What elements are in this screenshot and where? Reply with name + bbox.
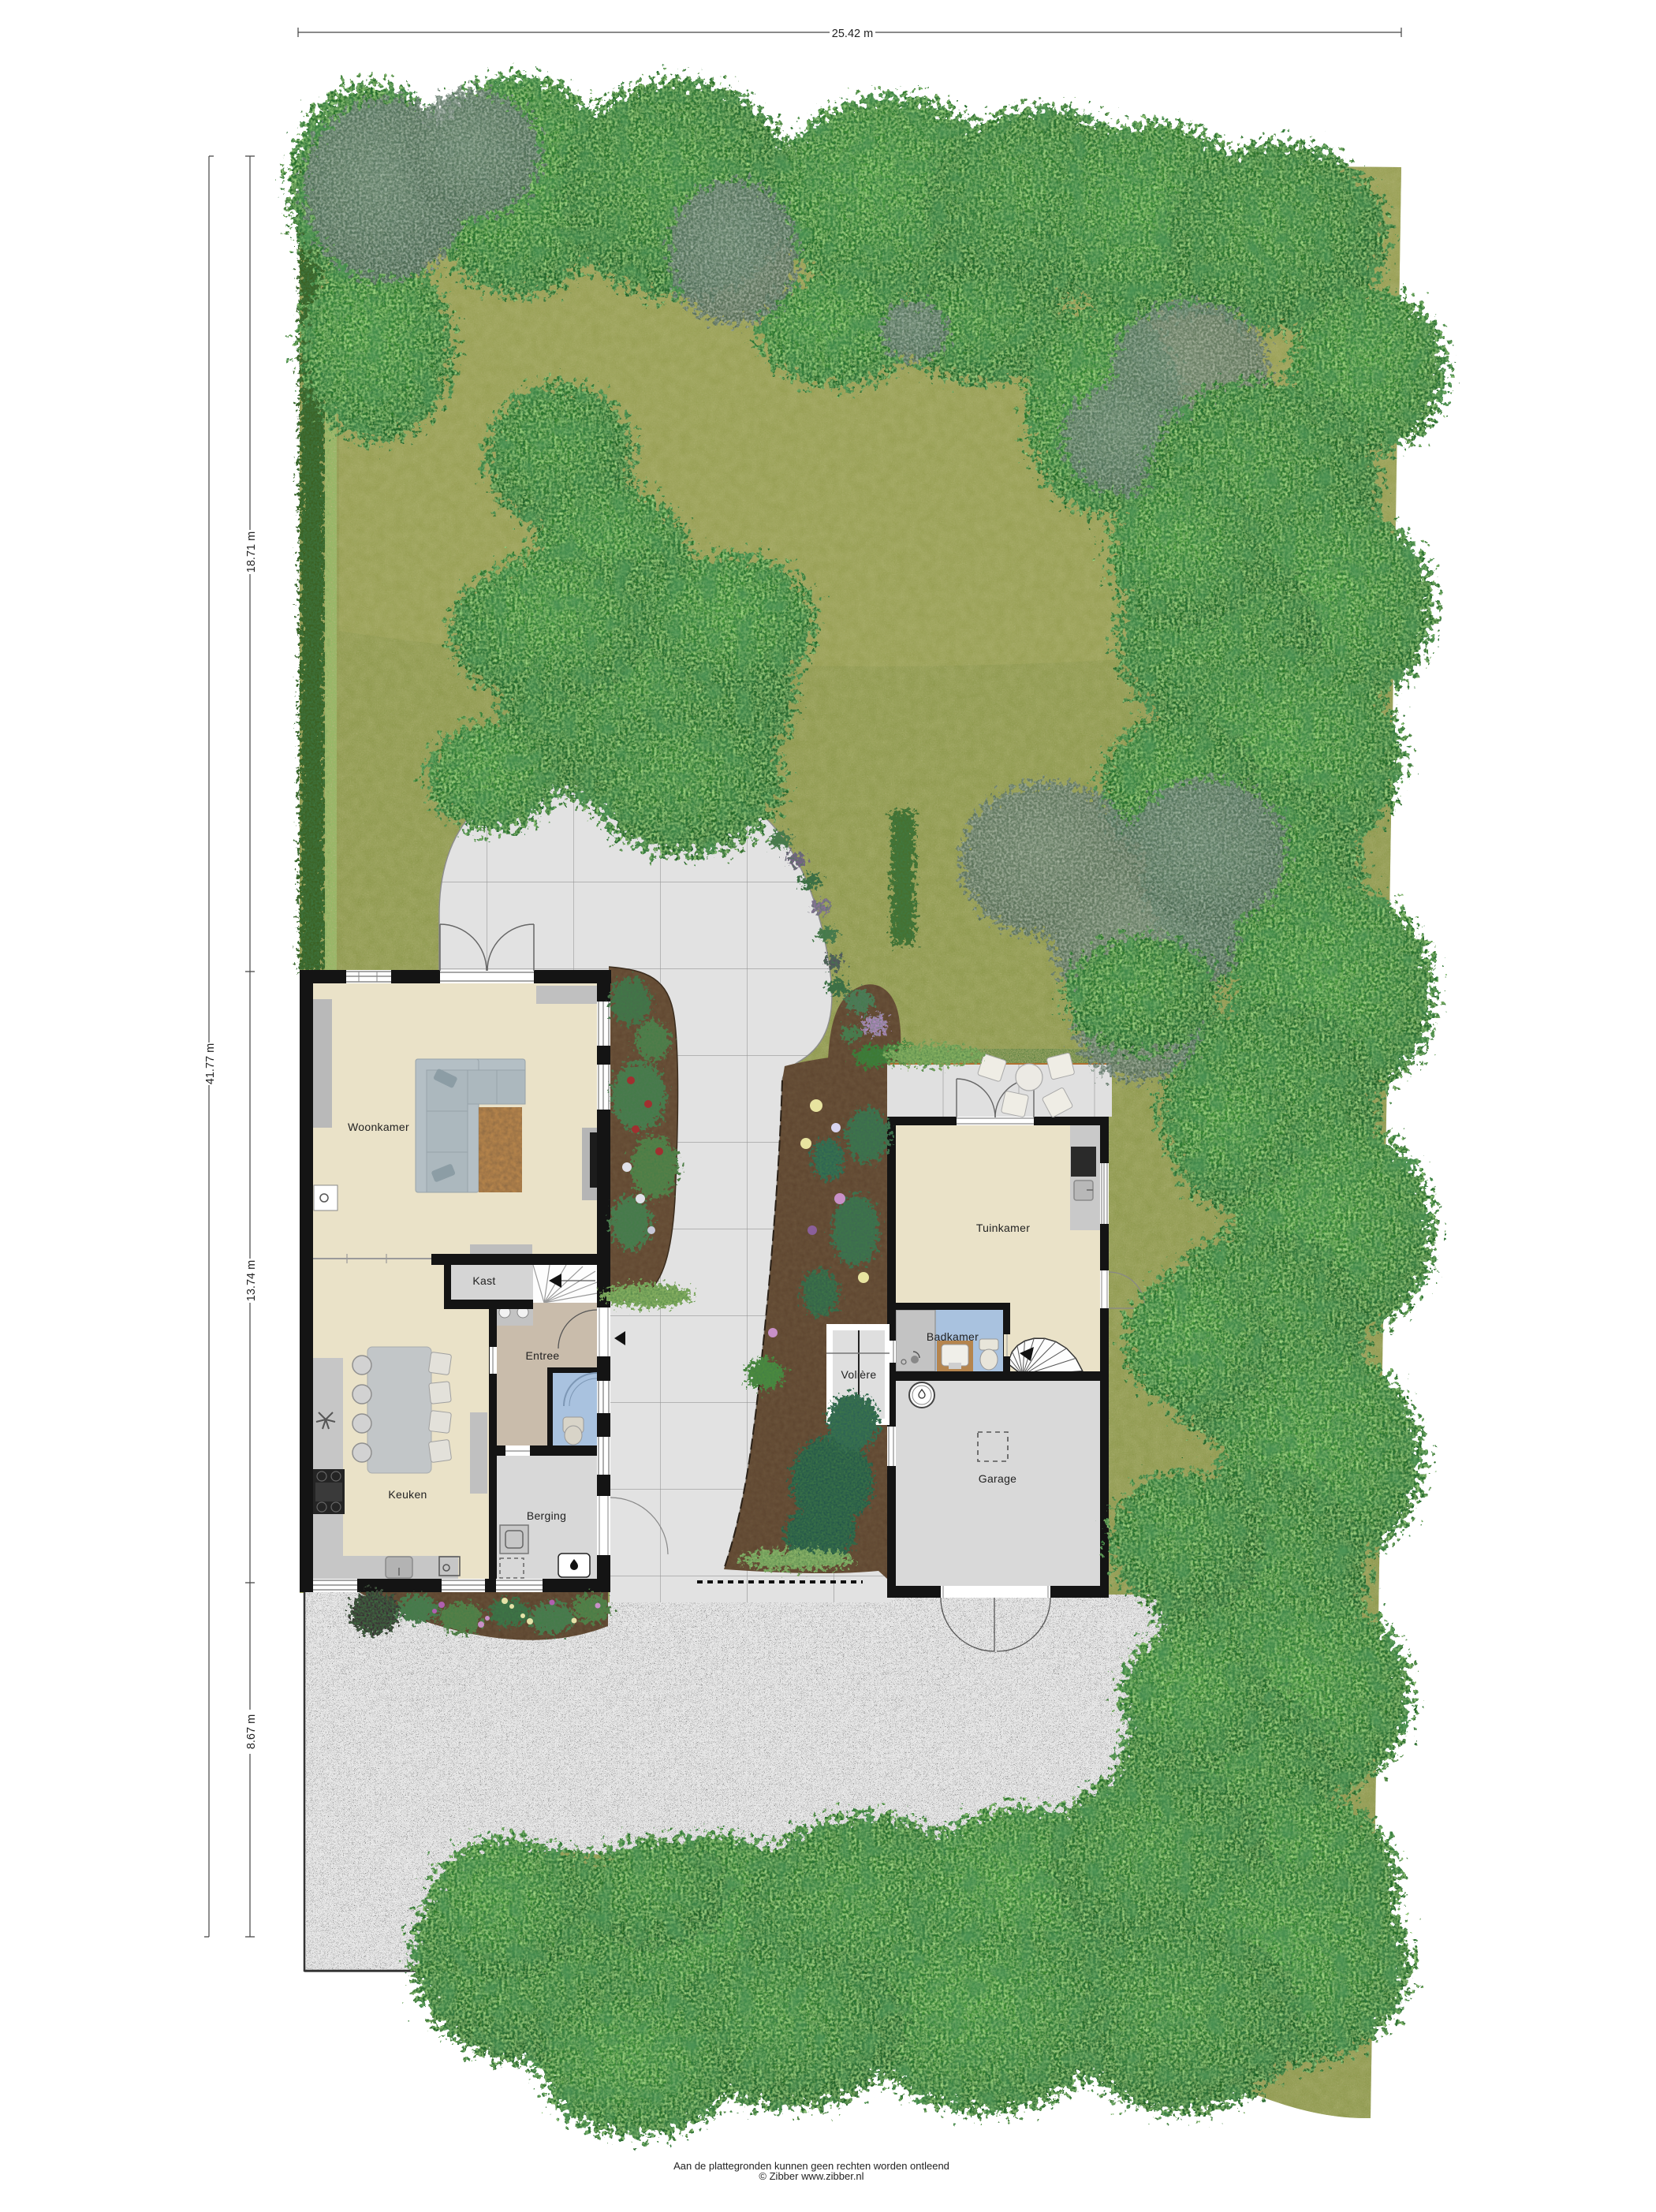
svg-text:Berging: Berging (527, 1509, 566, 1522)
svg-text:Tuinkamer: Tuinkamer (976, 1222, 1030, 1234)
svg-text:Kast: Kast (472, 1274, 495, 1287)
svg-text:25.42 m: 25.42 m (832, 28, 873, 40)
svg-text:Volière: Volière (841, 1368, 877, 1381)
svg-text:Garage: Garage (979, 1472, 1017, 1485)
svg-text:13.74 m: 13.74 m (245, 1260, 258, 1301)
svg-text:8.67 m: 8.67 m (245, 1714, 258, 1749)
svg-text:Badkamer: Badkamer (927, 1330, 979, 1343)
svg-text:18.71 m: 18.71 m (245, 532, 258, 573)
svg-text:41.77 m: 41.77 m (204, 1043, 217, 1084)
svg-text:Keuken: Keuken (388, 1488, 427, 1501)
svg-text:Entree: Entree (525, 1349, 559, 1362)
svg-text:Woonkamer: Woonkamer (348, 1121, 409, 1133)
svg-text:© Zibber www.zibber.nl: © Zibber www.zibber.nl (759, 2170, 863, 2182)
